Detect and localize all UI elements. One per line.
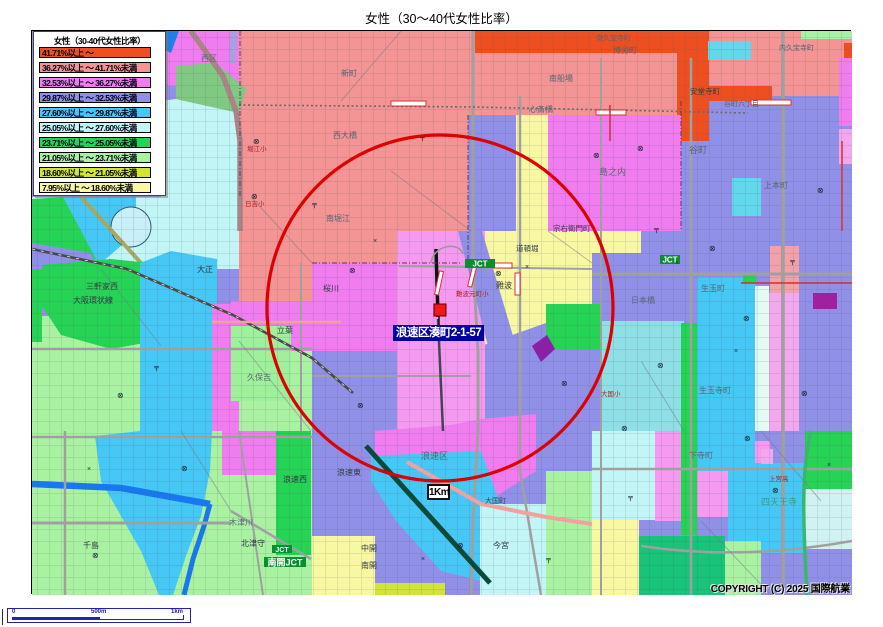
svg-text:安堂寺町: 安堂寺町 [690,86,720,96]
svg-text:南久宝寺町: 南久宝寺町 [596,33,631,42]
svg-text:中開: 中開 [361,543,377,553]
svg-text:⊗: ⊗ [621,424,628,433]
svg-text:新町: 新町 [341,68,357,78]
svg-text:谷町六丁目: 谷町六丁目 [724,99,759,108]
svg-text:⊗: ⊗ [744,434,751,443]
svg-text:生玉寺町: 生玉寺町 [699,385,731,395]
svg-text:桜川: 桜川 [323,283,339,293]
svg-text:⊗: ⊗ [561,379,568,388]
svg-text:⊗: ⊗ [181,464,188,473]
svg-text:⊗: ⊗ [801,389,808,398]
svg-text:×: × [675,260,679,267]
svg-text:×: × [421,556,425,563]
svg-text:⊗: ⊗ [92,551,99,560]
svg-text:〒: 〒 [653,228,660,235]
svg-text:〒: 〒 [311,203,318,210]
svg-text:浪速西: 浪速西 [283,474,307,484]
svg-text:南開JCT: 南開JCT [267,557,303,568]
svg-text:⊗: ⊗ [709,244,716,253]
svg-text:上宮高: 上宮高 [769,474,789,483]
svg-text:千島: 千島 [83,540,99,550]
svg-text:立葉: 立葉 [277,325,293,335]
svg-text:谷町: 谷町 [689,145,707,155]
svg-text:〒: 〒 [153,366,160,373]
svg-text:北津守: 北津守 [241,538,265,548]
svg-text:⊗: ⊗ [495,269,502,278]
svg-text:浪速区: 浪速区 [421,450,448,461]
svg-text:〒: 〒 [545,558,552,565]
svg-text:難波元町小: 難波元町小 [456,289,489,298]
svg-text:南開: 南開 [361,560,377,570]
svg-text:大国町: 大国町 [485,496,506,505]
svg-text:難波: 難波 [496,280,512,290]
svg-text:日本橋: 日本橋 [631,295,655,305]
svg-text:⊗: ⊗ [357,401,364,410]
svg-text:浪速東: 浪速東 [337,467,361,477]
svg-text:心斎橋: 心斎橋 [529,104,553,114]
svg-text:⊗: ⊗ [253,137,260,146]
svg-text:〒: 〒 [789,260,796,267]
svg-text:⊗: ⊗ [117,391,124,400]
svg-text:下寺町: 下寺町 [689,451,713,460]
svg-text:×: × [373,238,377,245]
svg-text:西区: 西区 [201,54,217,63]
svg-text:四天王寺: 四天王寺 [761,497,797,507]
svg-text:⊗: ⊗ [817,186,824,195]
svg-text:今宮: 今宮 [493,540,509,550]
svg-text:宗右衛門町: 宗右衛門町 [553,223,591,233]
svg-text:大国小: 大国小 [601,389,621,398]
svg-text:⊗: ⊗ [251,192,258,201]
svg-text:〒: 〒 [627,496,634,503]
svg-text:内久宝寺町: 内久宝寺町 [779,43,814,52]
svg-text:西大橋: 西大橋 [333,130,357,140]
svg-text:×: × [734,348,738,355]
svg-text:木津川: 木津川 [229,517,253,527]
svg-text:南堀江: 南堀江 [326,213,350,223]
svg-text:道頓堀: 道頓堀 [516,243,539,253]
svg-text:JCT: JCT [472,260,487,269]
svg-text:上本町: 上本町 [764,180,788,190]
svg-text:⊗: ⊗ [349,266,356,275]
svg-text:⊗: ⊗ [743,314,750,323]
svg-text:×: × [827,462,831,469]
svg-text:島之内: 島之内 [599,166,626,177]
svg-text:⊗: ⊗ [657,361,664,370]
svg-text:三軒家西: 三軒家西 [86,281,118,291]
svg-text:大阪環状線: 大阪環状線 [73,295,113,305]
svg-text:博労町: 博労町 [613,45,637,55]
svg-text:⊗: ⊗ [593,151,600,160]
svg-text:⊗: ⊗ [772,486,779,495]
svg-text:⊗: ⊗ [457,541,464,550]
svg-text:南船場: 南船場 [549,73,573,83]
svg-text:大正: 大正 [197,264,213,274]
svg-text:生玉町: 生玉町 [701,283,725,293]
svg-text:⊗: ⊗ [637,144,644,153]
svg-text:×: × [525,264,529,271]
svg-text:×: × [87,466,91,473]
svg-text:JCT: JCT [275,547,289,554]
